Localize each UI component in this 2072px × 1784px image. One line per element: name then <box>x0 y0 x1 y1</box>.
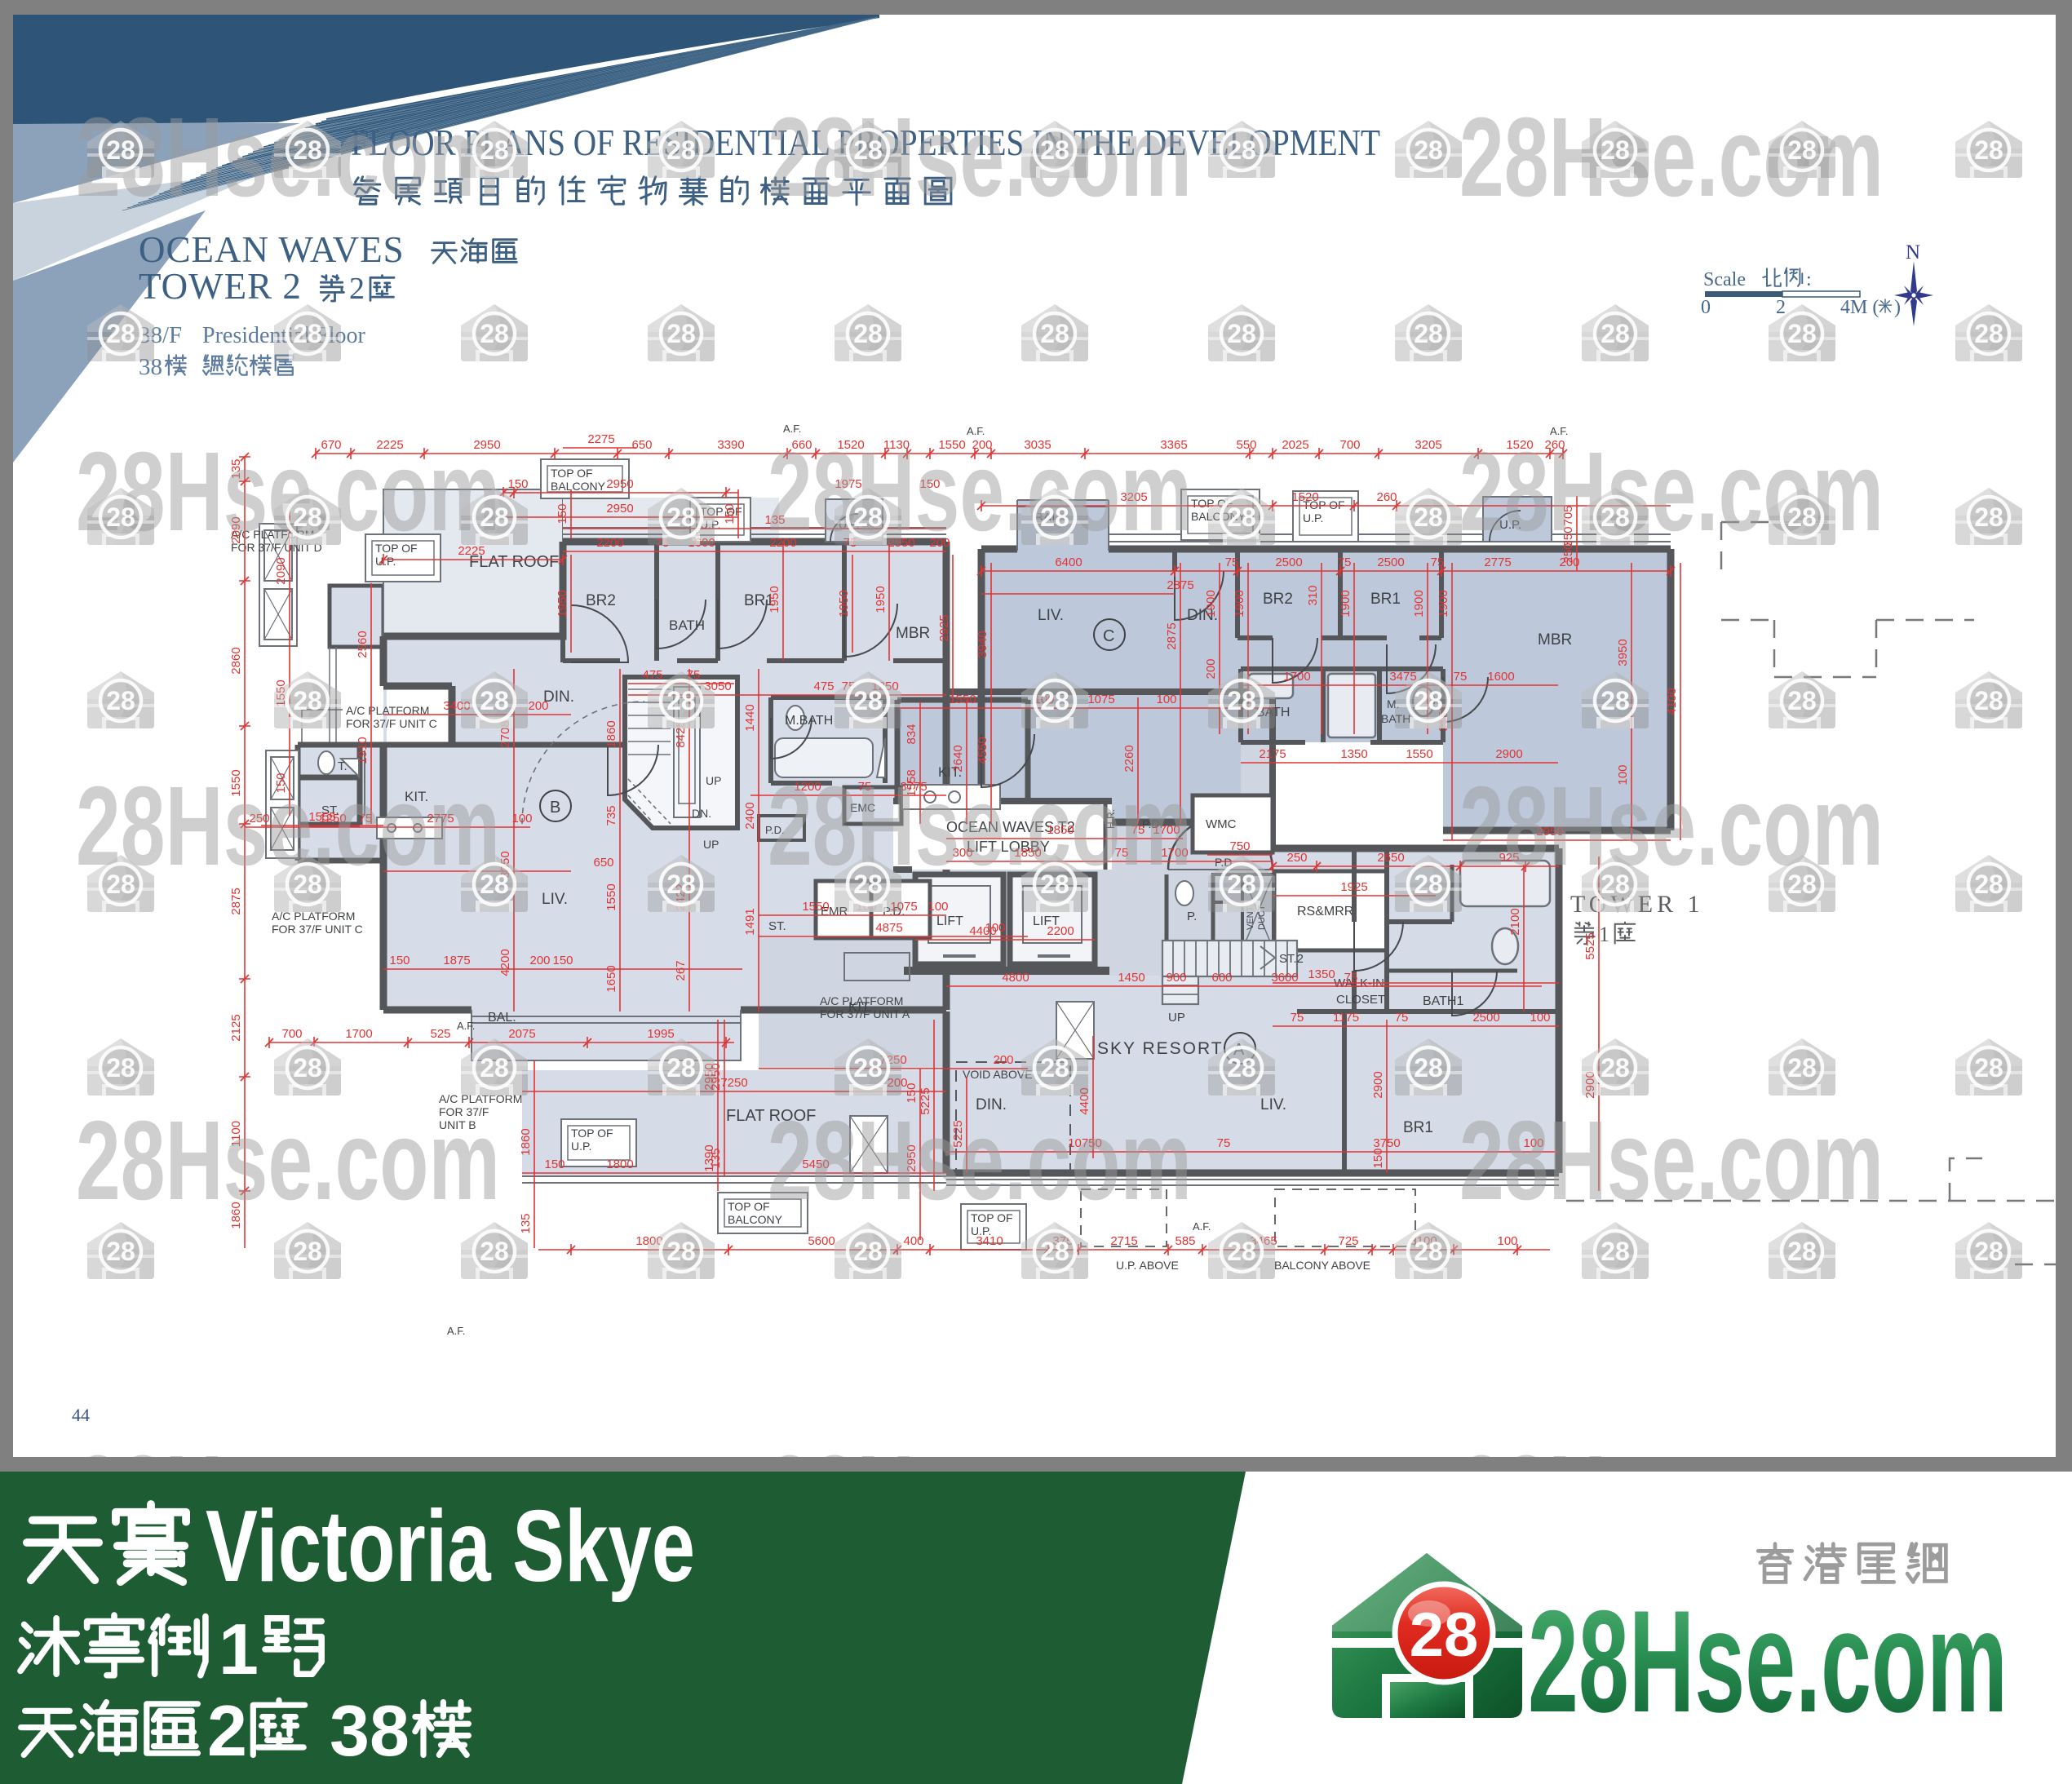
svg-text:260: 260 <box>1376 490 1397 504</box>
svg-text:75: 75 <box>1454 670 1468 684</box>
svg-text:1900: 1900 <box>1437 590 1450 617</box>
svg-text:4875: 4875 <box>875 921 902 935</box>
svg-text:TOP OF: TOP OF <box>571 1127 613 1140</box>
svg-text:1950: 1950 <box>556 590 569 617</box>
svg-text:SKY RESORT: SKY RESORT <box>1097 1039 1224 1058</box>
svg-text:5600: 5600 <box>808 1234 835 1248</box>
svg-text:28Hse.com: 28Hse.com <box>768 1098 1192 1224</box>
svg-text:1860: 1860 <box>519 1128 533 1155</box>
svg-text:LIV.: LIV. <box>1260 1096 1286 1113</box>
svg-text:1925: 1925 <box>1340 880 1367 894</box>
svg-text:BALCONY ABOVE: BALCONY ABOVE <box>1274 1259 1370 1272</box>
svg-text:267: 267 <box>674 960 688 981</box>
svg-text:475: 475 <box>642 668 662 682</box>
svg-text:2950: 2950 <box>606 502 633 516</box>
svg-text:BR2: BR2 <box>586 592 616 609</box>
svg-text:2200: 2200 <box>1047 924 1074 938</box>
svg-text:44: 44 <box>72 1405 90 1425</box>
svg-text:1491: 1491 <box>743 908 757 935</box>
svg-text:75: 75 <box>1225 556 1239 569</box>
svg-text:2200: 2200 <box>596 536 623 550</box>
svg-text:3205: 3205 <box>1415 438 1441 452</box>
svg-text:TOWER 2: TOWER 2 <box>139 266 302 307</box>
svg-text:MBR: MBR <box>896 625 930 642</box>
svg-text:B: B <box>550 799 560 817</box>
svg-text:28Hse.com: 28Hse.com <box>1459 1098 1884 1224</box>
svg-text:135: 135 <box>709 1148 723 1168</box>
svg-text:2875: 2875 <box>229 888 243 914</box>
svg-text:2175: 2175 <box>1259 747 1286 761</box>
svg-text:1550: 1550 <box>802 900 829 914</box>
svg-text:FOR 37/F UNIT C: FOR 37/F UNIT C <box>346 717 437 730</box>
svg-text:A.F.: A.F. <box>1193 1220 1211 1233</box>
svg-text:4800: 4800 <box>1002 971 1029 985</box>
svg-text:U.P.: U.P. <box>571 1140 591 1153</box>
svg-text:2560: 2560 <box>356 631 370 657</box>
svg-text:28Hse.com: 28Hse.com <box>768 95 1192 220</box>
svg-text:BATH: BATH <box>669 618 705 633</box>
svg-text:2125: 2125 <box>229 1014 243 1041</box>
svg-text:2650: 2650 <box>1377 851 1404 865</box>
svg-text:LIV.: LIV. <box>1038 607 1064 624</box>
svg-text:ST.: ST. <box>768 919 786 933</box>
svg-text:200: 200 <box>993 1053 1013 1067</box>
svg-text:LIV.: LIV. <box>542 891 568 908</box>
svg-text:1350: 1350 <box>1308 967 1335 981</box>
svg-text:1700: 1700 <box>345 1027 372 1041</box>
svg-text:P.: P. <box>1187 910 1197 923</box>
svg-text:U.P. ABOVE: U.P. ABOVE <box>1116 1259 1179 1272</box>
svg-text:3940: 3940 <box>976 631 990 657</box>
svg-text:100: 100 <box>1497 1234 1517 1248</box>
svg-text:2500: 2500 <box>1472 1011 1499 1025</box>
svg-text:475: 475 <box>813 680 834 693</box>
svg-text:1910: 1910 <box>356 737 370 764</box>
svg-text:2900: 2900 <box>1495 747 1522 761</box>
svg-text:834: 834 <box>905 724 919 744</box>
svg-text:200: 200 <box>1204 658 1218 679</box>
svg-text:1175: 1175 <box>1333 1011 1359 1025</box>
svg-text:2950: 2950 <box>606 477 633 491</box>
svg-text:): ) <box>1894 297 1901 318</box>
svg-text:BR2: BR2 <box>1263 591 1293 608</box>
svg-text:2875: 2875 <box>1165 622 1179 649</box>
svg-text:6400: 6400 <box>1055 556 1082 569</box>
svg-text:100: 100 <box>511 812 532 826</box>
svg-text:28Hse.com: 28Hse.com <box>1528 1580 2008 1742</box>
svg-text:1350: 1350 <box>1340 747 1367 761</box>
svg-text:2100: 2100 <box>1508 908 1522 935</box>
svg-text:75: 75 <box>1217 1136 1231 1150</box>
svg-text:TOP OF: TOP OF <box>728 1200 770 1213</box>
svg-text:Scale: Scale <box>1703 269 1746 290</box>
svg-text:1550: 1550 <box>949 693 976 706</box>
svg-text:2275: 2275 <box>587 432 614 446</box>
svg-text:3410: 3410 <box>976 1234 1003 1248</box>
svg-text:2775: 2775 <box>1484 556 1511 569</box>
svg-text:28Hse.com: 28Hse.com <box>768 764 1192 889</box>
svg-text:900: 900 <box>1166 971 1186 985</box>
svg-text:150: 150 <box>723 503 737 524</box>
svg-text:1650: 1650 <box>604 965 618 992</box>
svg-text:1950: 1950 <box>768 586 781 613</box>
svg-text:1995: 1995 <box>647 1027 674 1041</box>
svg-text:1700: 1700 <box>1283 670 1310 684</box>
svg-text:1440: 1440 <box>743 704 757 731</box>
svg-text:525: 525 <box>430 1027 450 1041</box>
svg-text:M.BATH: M.BATH <box>785 714 833 728</box>
svg-text:3390: 3390 <box>717 438 744 452</box>
svg-text:750: 750 <box>1229 839 1250 853</box>
svg-text:4200: 4200 <box>498 949 512 976</box>
svg-text:1900: 1900 <box>1233 590 1246 617</box>
svg-text:2925: 2925 <box>937 614 951 641</box>
svg-text:UP: UP <box>706 774 721 787</box>
svg-text:2090: 2090 <box>274 557 288 584</box>
svg-text:BAL.: BAL. <box>488 1011 516 1025</box>
svg-text:U.P.: U.P. <box>1303 511 1323 525</box>
svg-text:1550: 1550 <box>1406 747 1432 761</box>
svg-text:BR1: BR1 <box>1370 591 1401 608</box>
svg-text:150: 150 <box>552 954 573 967</box>
svg-text:38: 38 <box>330 1690 410 1771</box>
svg-text:C: C <box>1103 627 1114 645</box>
svg-text:1875: 1875 <box>443 954 470 967</box>
svg-text:4100: 4100 <box>1665 688 1679 715</box>
svg-text:WMC: WMC <box>1206 817 1237 831</box>
svg-text:MBR: MBR <box>1538 631 1572 649</box>
svg-text:2900: 2900 <box>1371 1071 1385 1098</box>
svg-text:1900: 1900 <box>1204 590 1218 617</box>
svg-text:1950: 1950 <box>874 586 888 613</box>
svg-text:FOR 37/F UNIT C: FOR 37/F UNIT C <box>272 923 363 936</box>
svg-text:150: 150 <box>389 954 410 967</box>
svg-text:TOP OF: TOP OF <box>551 467 593 480</box>
svg-text:A.F.: A.F. <box>457 1020 475 1032</box>
svg-text:100: 100 <box>928 900 948 914</box>
svg-text:650: 650 <box>593 856 613 870</box>
svg-text:28: 28 <box>1410 1600 1479 1670</box>
svg-text:N: N <box>1906 241 1920 263</box>
svg-text:1: 1 <box>1599 923 1609 946</box>
svg-text:200: 200 <box>528 699 548 713</box>
svg-text:75: 75 <box>1291 1011 1304 1025</box>
svg-text:DN.: DN. <box>692 807 711 820</box>
svg-text:2500: 2500 <box>1275 556 1302 569</box>
svg-text:150: 150 <box>1371 1148 1385 1168</box>
svg-text:2075: 2075 <box>508 1027 535 1041</box>
svg-text:4550: 4550 <box>976 737 990 764</box>
svg-text:LIFT: LIFT <box>936 914 963 928</box>
svg-text:0: 0 <box>1701 297 1711 318</box>
svg-text:250: 250 <box>1286 851 1307 865</box>
svg-text:2: 2 <box>207 1690 247 1771</box>
svg-text:3950: 3950 <box>1616 639 1630 666</box>
svg-text:135: 135 <box>519 1213 533 1233</box>
svg-text:700: 700 <box>1339 438 1360 452</box>
svg-text:1860: 1860 <box>604 720 618 747</box>
svg-text:310: 310 <box>1306 585 1320 605</box>
svg-text:2715: 2715 <box>1110 1234 1137 1248</box>
svg-text:2025: 2025 <box>1282 438 1308 452</box>
svg-text:150: 150 <box>556 503 569 524</box>
svg-text:100: 100 <box>1156 693 1176 706</box>
svg-text:1075: 1075 <box>1087 693 1114 706</box>
svg-text:UP: UP <box>703 838 719 851</box>
svg-text:RS&MRR: RS&MRR <box>1297 905 1353 919</box>
svg-text:4M (: 4M ( <box>1840 297 1879 318</box>
svg-text:2400: 2400 <box>743 802 757 829</box>
svg-text:100: 100 <box>985 921 1005 935</box>
svg-text:A/C PLATFORM: A/C PLATFORM <box>820 994 903 1007</box>
svg-text:1950: 1950 <box>837 590 851 617</box>
svg-text:Victoria Skye: Victoria Skye <box>206 1490 695 1603</box>
svg-text:CLOSET: CLOSET <box>1336 993 1385 1007</box>
svg-text:1800: 1800 <box>606 1158 633 1171</box>
svg-text:A.F.: A.F. <box>447 1325 465 1337</box>
svg-text:BALCONY: BALCONY <box>551 480 606 493</box>
svg-text:1900: 1900 <box>1339 590 1353 617</box>
svg-text:ST.2: ST.2 <box>1279 952 1304 966</box>
svg-text:150: 150 <box>544 1158 564 1171</box>
svg-text:75: 75 <box>1431 556 1445 569</box>
svg-text:600: 600 <box>1211 971 1232 985</box>
svg-text:2: 2 <box>349 272 365 306</box>
svg-text:2500: 2500 <box>1377 556 1404 569</box>
svg-text:FOR 37/F UNIT A: FOR 37/F UNIT A <box>820 1007 910 1020</box>
svg-text:2860: 2860 <box>229 647 243 674</box>
svg-text:735: 735 <box>604 805 618 826</box>
svg-text::: : <box>1806 269 1812 290</box>
svg-text:200: 200 <box>529 954 550 967</box>
svg-text:1520: 1520 <box>1291 490 1318 504</box>
svg-text:1550: 1550 <box>604 883 618 910</box>
svg-text:1900: 1900 <box>1412 590 1426 617</box>
svg-text:2875: 2875 <box>1167 578 1193 592</box>
svg-text:200: 200 <box>1559 556 1579 569</box>
svg-text:BR1: BR1 <box>1403 1119 1433 1136</box>
svg-text:1600: 1600 <box>1487 670 1514 684</box>
svg-text:OCEAN WAVES: OCEAN WAVES <box>139 229 405 270</box>
svg-text:2: 2 <box>1776 297 1786 318</box>
svg-text:585: 585 <box>1175 1234 1195 1248</box>
svg-text:650: 650 <box>631 438 652 452</box>
svg-text:5525: 5525 <box>1583 932 1597 959</box>
svg-text:28Hse.com: 28Hse.com <box>768 429 1192 555</box>
svg-text:1: 1 <box>219 1609 259 1689</box>
svg-text:28Hse.com: 28Hse.com <box>76 1098 500 1224</box>
svg-text:75: 75 <box>1395 1011 1409 1025</box>
svg-text:BATH1: BATH1 <box>1423 994 1463 1008</box>
svg-text:725: 725 <box>1338 1234 1358 1248</box>
svg-text:100: 100 <box>1530 1011 1550 1025</box>
svg-text:700: 700 <box>281 1027 302 1041</box>
svg-text:UP: UP <box>1168 1011 1185 1025</box>
svg-text:1450: 1450 <box>1118 971 1144 985</box>
